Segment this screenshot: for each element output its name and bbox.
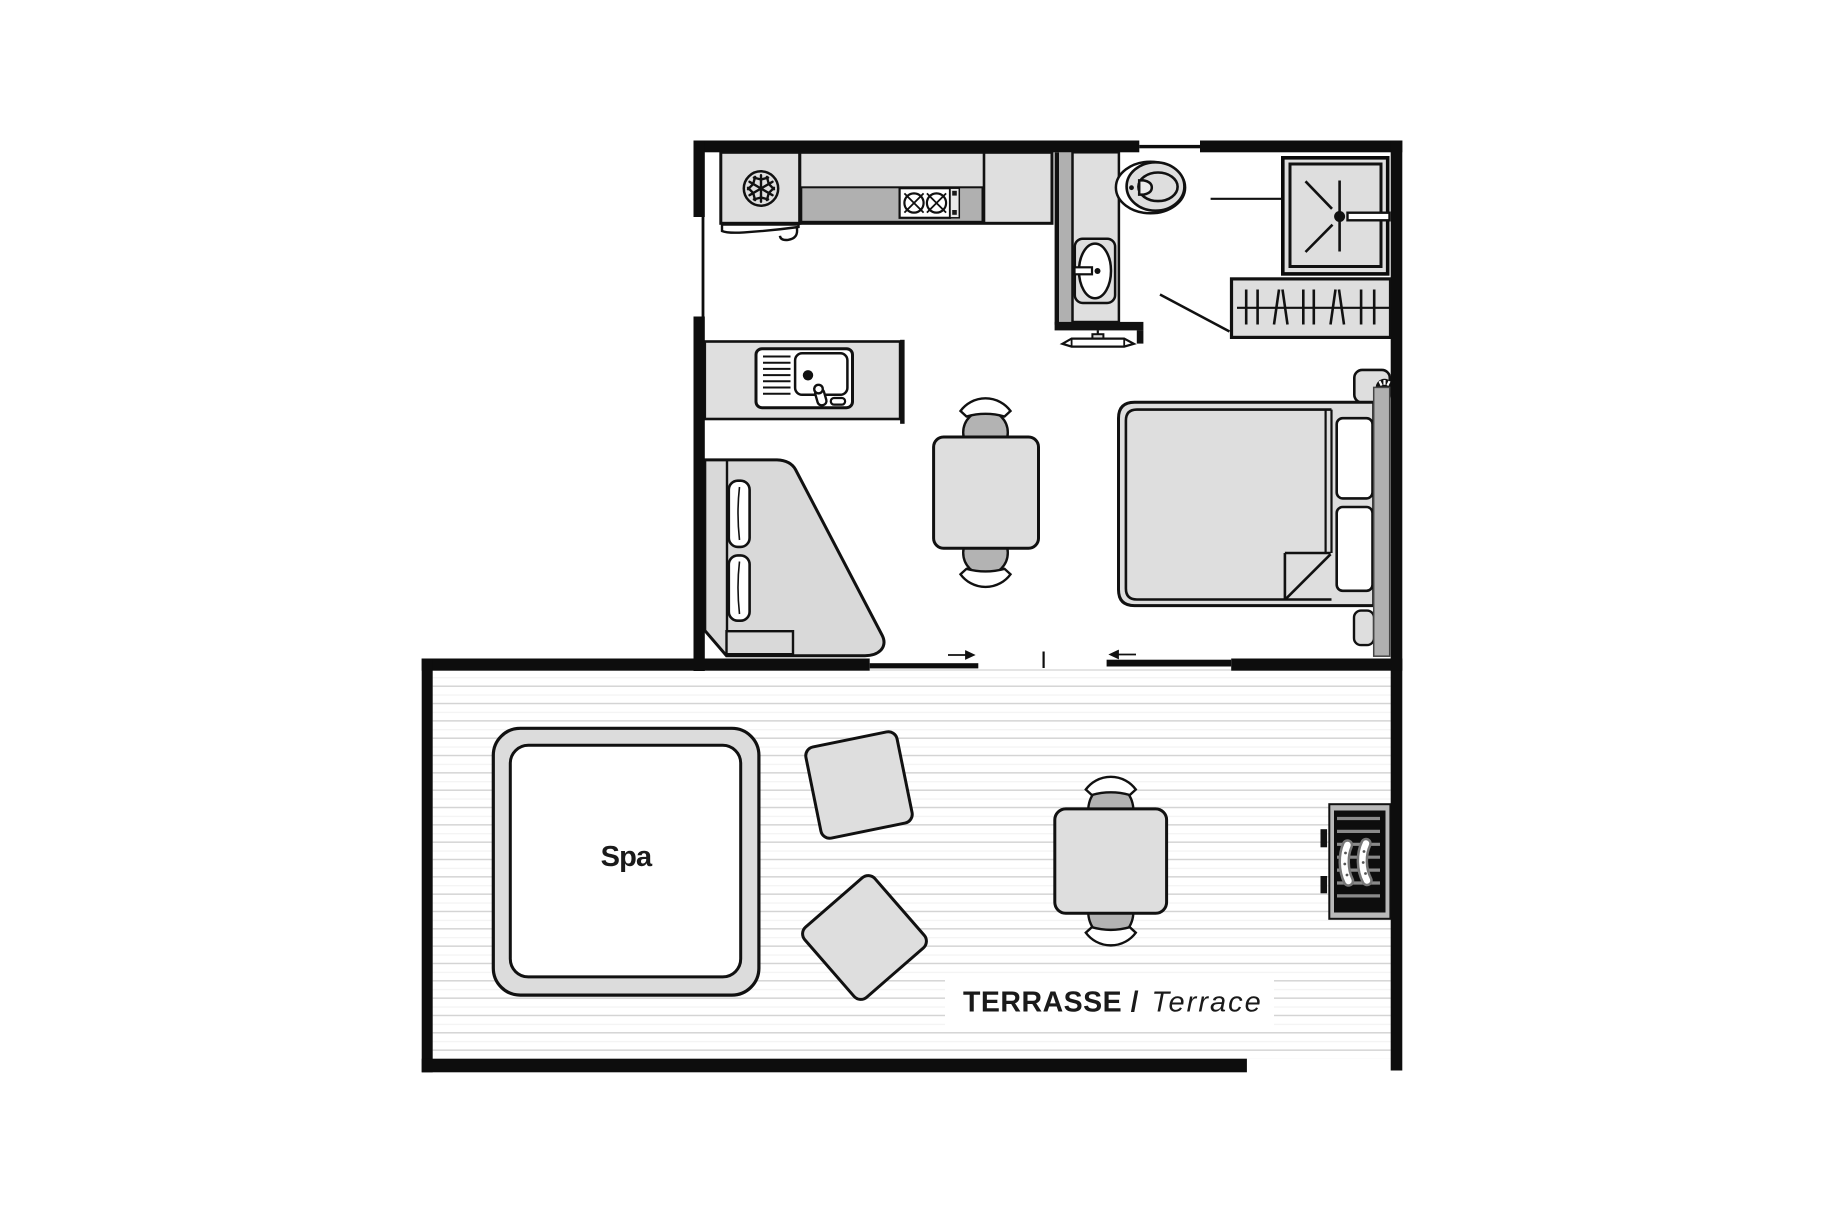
svg-text:Spa: Spa — [601, 841, 653, 873]
svg-text:TERRASSE /: TERRASSE / — [963, 987, 1139, 1019]
svg-text:Terrace: Terrace — [1152, 987, 1263, 1019]
